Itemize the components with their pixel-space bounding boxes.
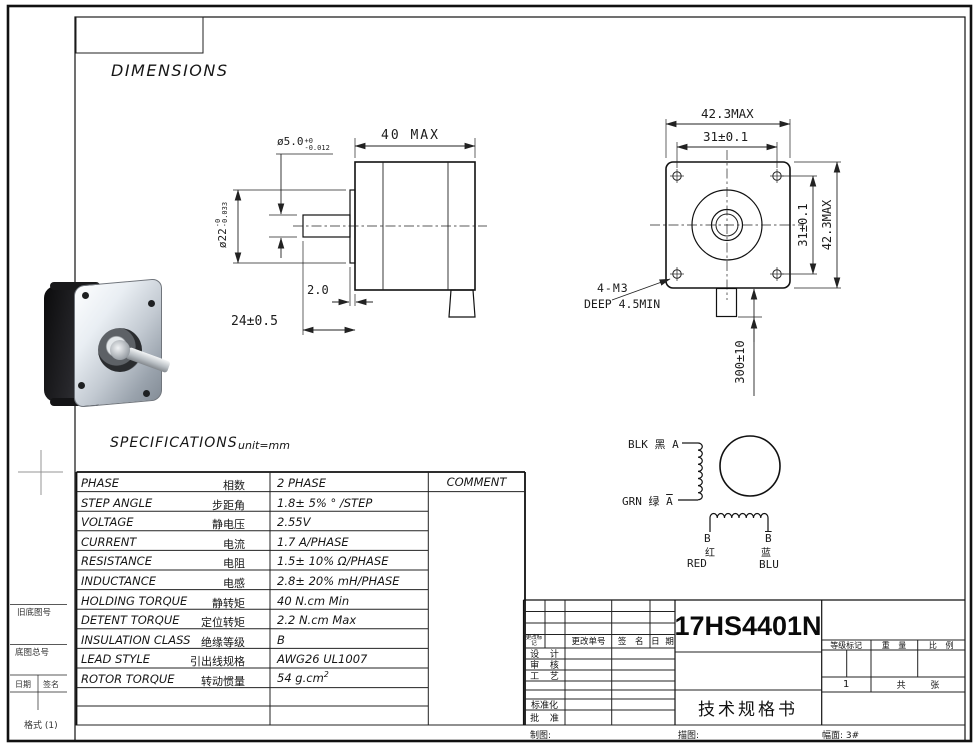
spec-phase-value: 2 PHASE — [277, 476, 326, 490]
date-column-label: 日 期 — [650, 635, 675, 648]
spec-phase: PHASE — [81, 476, 119, 490]
mount-depth-label: DEEP 4.5MIN — [584, 297, 660, 311]
standardization-label: 标准化 — [524, 699, 566, 710]
dim-width-max: 42.3MAX — [701, 106, 754, 121]
dimensions-title: DIMENSIONS — [111, 61, 229, 80]
spec-step-angle-cn: 步距角 — [150, 497, 245, 513]
spec-current-value: 1.7 A/PHASE — [277, 535, 349, 549]
trace-label: 描图: — [678, 728, 699, 741]
old-base-drawing-no-label: 旧底图号 — [17, 606, 51, 618]
spec-detent-torque-value: 2.2 N.cm Max — [277, 613, 356, 627]
spec-insulation-class-cn: 绝缘等级 — [150, 634, 245, 650]
approval-label: 批 准 — [524, 710, 566, 724]
dim-boss-diameter: ø22-0-0.033 — [213, 190, 231, 260]
spec-step-angle-value: 1.8± 5% ° /STEP — [277, 496, 372, 510]
spec-detent-torque-cn: 定位转矩 — [150, 614, 245, 630]
wire-label-blue-cn: 蓝 — [761, 544, 771, 559]
spec-insulation-class-value: B — [277, 633, 285, 647]
wire-label-green-abar: GRN 绿 A — [622, 493, 673, 509]
spec-holding-torque-value: 40 N.cm Min — [277, 594, 349, 608]
dim-height-max: 42.3MAX — [819, 190, 835, 260]
spec-resistance: RESISTANCE — [81, 554, 152, 568]
spec-lead-style: LEAD STYLE — [81, 652, 150, 666]
wire-label-red: RED — [687, 557, 707, 570]
format-label: 格式 (1) — [24, 718, 58, 731]
dim-boss-tol-lower: -0.033 — [222, 202, 229, 227]
spec-voltage: VOLTAGE — [81, 515, 134, 529]
base-drawing-total-no-label: 底图总号 — [15, 646, 49, 658]
spec-rotor-torque-number: 54 g.cm — [277, 671, 324, 685]
part-number: 17HS4401N — [675, 600, 821, 652]
phase-a-bar: A — [666, 495, 673, 508]
change-mark-label: 更改标记 — [525, 635, 544, 647]
spec-voltage-cn: 静电压 — [150, 516, 245, 532]
mount-hole-label: 4-M3 — [597, 281, 629, 295]
dim-lead-length: 300±10 — [732, 329, 748, 395]
scale-label: 比 例 — [918, 640, 965, 650]
motor-photo — [42, 276, 166, 416]
spec-rotor-torque-sup: 2 — [324, 670, 329, 679]
spec-phase-cn: 相数 — [150, 477, 245, 493]
spec-inductance: INDUCTANCE — [81, 574, 156, 588]
dim-shaft-length: 24±0.5 — [231, 314, 278, 329]
spec-rotor-torque-value: 54 g.cm2 — [277, 670, 329, 685]
spec-resistance-cn: 电阻 — [150, 555, 245, 571]
margin-sign-label: 签名 — [43, 679, 59, 690]
dim-shaft-diameter: ø5.0+0-0.012 — [277, 135, 330, 152]
spec-current-cn: 电流 — [150, 536, 245, 552]
change-order-label: 更改单号 — [565, 635, 612, 648]
dim-hole-pitch-h: 31±0.1 — [703, 129, 748, 144]
spec-current: CURRENT — [81, 535, 136, 549]
spec-holding-torque-cn: 静转矩 — [150, 595, 245, 611]
spec-voltage-value: 2.55V — [277, 515, 310, 529]
spec-resistance-value: 1.5± 10% Ω/PHASE — [277, 554, 388, 568]
unit-label: unit=mm — [238, 439, 290, 452]
grade-mark-label: 等级标记 — [822, 640, 871, 650]
motor-photo-hole — [148, 300, 155, 307]
spec-step-angle: STEP ANGLE — [81, 496, 152, 510]
sign-column-label: 签 名 — [612, 635, 650, 648]
motor-photo-hub — [110, 340, 130, 360]
draw-label: 制图: — [530, 728, 551, 741]
sheet-size-label: 幅面: 3# — [822, 728, 859, 741]
sheet-number: 1 — [822, 677, 871, 692]
spec-rotor-torque-cn: 转动惯量 — [150, 673, 245, 689]
drawing-sheet: DIMENSIONS SPECIFICATIONS unit=mm ø5.0+0… — [0, 0, 979, 746]
dim-body-length: 40 MAX — [381, 128, 440, 143]
dim-shaft-diameter-value: ø5.0 — [277, 135, 304, 148]
comment-header: COMMENT — [428, 475, 525, 489]
doc-title: 技术规格书 — [675, 690, 821, 725]
dim-hole-pitch-v: 31±0.1 — [795, 190, 811, 260]
spec-inductance-cn: 电感 — [150, 575, 245, 591]
spec-inductance-value: 2.8± 20% mH/PHASE — [277, 574, 400, 588]
wire-label-green: GRN 绿 — [622, 495, 660, 508]
wire-label-blue: BLU — [759, 558, 779, 571]
sheet-total-label: 共 张 — [871, 677, 965, 692]
dim-boss-diameter-value: ø22 — [216, 228, 229, 248]
spec-lead-style-value: AWG26 UL1007 — [277, 652, 367, 666]
motor-photo-hole — [82, 292, 89, 299]
spec-lead-style-cn: 引出线规格 — [150, 653, 245, 669]
wire-label-black-a: BLK 黑 A — [628, 436, 679, 452]
process-label: 工 艺 — [524, 670, 566, 681]
margin-date-label: 日期 — [15, 679, 31, 690]
dim-boss-height: 2.0 — [307, 283, 329, 297]
specifications-title: SPECIFICATIONS — [110, 435, 238, 451]
motor-photo-hole — [143, 390, 150, 397]
motor-photo-hole — [78, 382, 85, 389]
dim-shaft-tol-lower: -0.012 — [305, 145, 330, 152]
weight-label: 重 量 — [871, 640, 917, 650]
